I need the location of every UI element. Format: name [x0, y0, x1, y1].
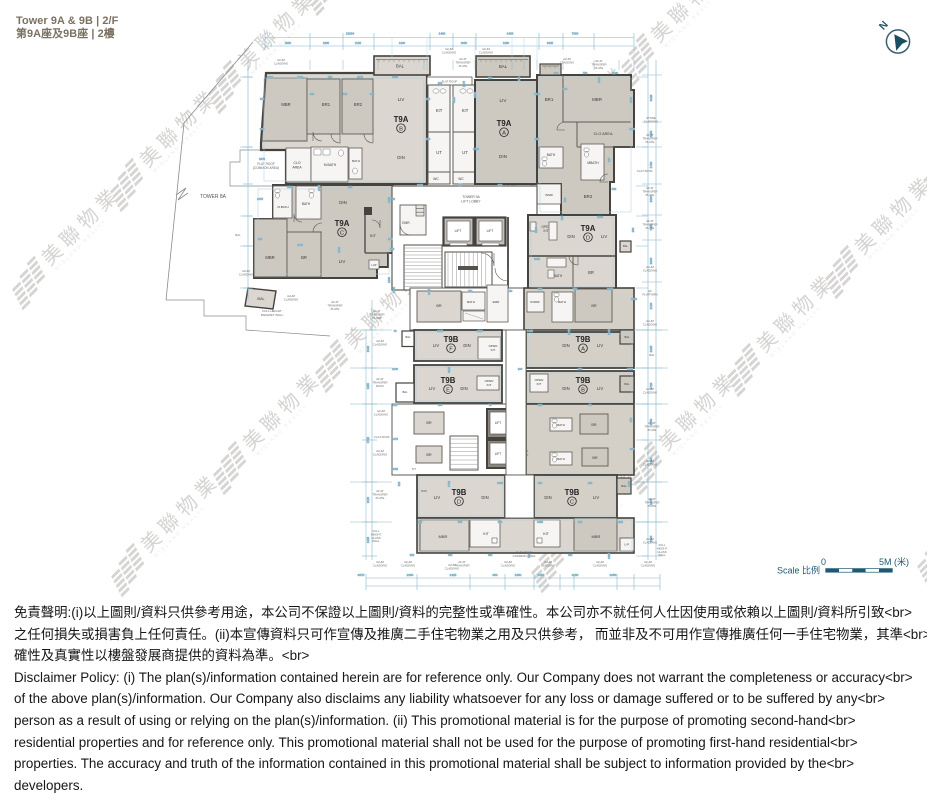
- svg-text:BR: BR: [426, 453, 432, 457]
- svg-text:KIT: KIT: [462, 108, 469, 113]
- svg-text:300: 300: [631, 227, 635, 232]
- svg-text:75: 75: [489, 403, 492, 407]
- svg-text:LUP: LUP: [371, 263, 376, 267]
- svg-text:PLATFORM: PLATFORM: [642, 292, 658, 296]
- svg-text:CLADDING: CLADDING: [643, 322, 657, 326]
- svg-text:2800: 2800: [649, 257, 653, 264]
- svg-text:BATH: BATH: [547, 153, 556, 157]
- svg-text:4150: 4150: [572, 573, 579, 577]
- svg-text:KIT: KIT: [487, 383, 492, 387]
- svg-text:100: 100: [438, 81, 443, 85]
- svg-text:525: 525: [418, 520, 423, 524]
- svg-text:UT: UT: [462, 150, 468, 155]
- svg-text:MBR: MBR: [421, 489, 427, 493]
- svg-text:7980: 7980: [572, 32, 579, 36]
- svg-text:150: 150: [578, 520, 583, 524]
- svg-text:PLATE: PLATE: [646, 226, 655, 230]
- svg-text:PLATE: PLATE: [331, 307, 340, 311]
- svg-text:3129: 3129: [366, 345, 370, 352]
- svg-text:2100: 2100: [649, 302, 653, 309]
- svg-text:750: 750: [260, 97, 265, 101]
- svg-text:300: 300: [538, 287, 543, 291]
- svg-text:150: 150: [388, 237, 393, 241]
- svg-text:T9A: T9A: [394, 115, 409, 124]
- svg-text:CLO: CLO: [294, 161, 301, 165]
- svg-text:1350: 1350: [503, 41, 510, 45]
- svg-text:CLADDING: CLADDING: [643, 390, 657, 394]
- svg-text:1050: 1050: [627, 481, 631, 487]
- svg-text:M.BATH: M.BATH: [277, 205, 288, 209]
- svg-text:CLADDING: CLADDING: [643, 268, 657, 272]
- svg-text:DIN: DIN: [460, 386, 467, 391]
- svg-text:A: A: [502, 131, 506, 137]
- svg-text:PLATE: PLATE: [646, 193, 655, 197]
- svg-text:C: C: [340, 231, 344, 237]
- svg-text:5/T: 5/T: [412, 467, 416, 471]
- svg-text:KIT: KIT: [544, 229, 549, 233]
- svg-text:CLO AREA: CLO AREA: [594, 132, 613, 136]
- svg-text:BR: BR: [436, 304, 442, 308]
- svg-text:100: 100: [554, 71, 559, 75]
- svg-text:1675: 1675: [427, 289, 431, 295]
- svg-text:3425: 3425: [607, 553, 611, 559]
- svg-text:TOWER 9A: TOWER 9A: [462, 195, 480, 199]
- svg-text:LIV: LIV: [339, 259, 346, 264]
- svg-text:BAL: BAL: [402, 390, 408, 394]
- svg-text:3025: 3025: [534, 257, 540, 261]
- svg-text:D: D: [586, 236, 590, 242]
- svg-text:PLATE: PLATE: [648, 504, 657, 508]
- svg-text:BR: BR: [588, 270, 594, 275]
- svg-text:LIFT: LIFT: [455, 229, 462, 233]
- svg-text:225: 225: [426, 97, 431, 101]
- svg-text:2100: 2100: [612, 71, 618, 75]
- svg-text:3025: 3025: [497, 481, 503, 485]
- svg-text:750: 750: [573, 287, 578, 291]
- svg-text:1050: 1050: [631, 297, 637, 301]
- svg-text:1050: 1050: [392, 287, 396, 293]
- svg-text:COMMON AREA: COMMON AREA: [513, 554, 536, 558]
- svg-text:BAL: BAL: [624, 382, 630, 386]
- svg-text:U.P.: U.P.: [624, 543, 630, 547]
- svg-text:T9B: T9B: [576, 376, 591, 385]
- svg-text:750: 750: [583, 71, 588, 75]
- svg-text:PLATE: PLATE: [648, 428, 657, 432]
- svg-text:2100: 2100: [607, 329, 611, 335]
- svg-text:150: 150: [488, 76, 493, 80]
- svg-text:T9B: T9B: [444, 335, 459, 344]
- svg-text:100: 100: [518, 367, 523, 371]
- svg-text:2475: 2475: [257, 197, 263, 201]
- svg-text:75: 75: [394, 329, 397, 333]
- svg-text:CLADDING: CLADDING: [373, 452, 387, 456]
- svg-text:BATH: BATH: [302, 202, 311, 206]
- svg-text:T9B: T9B: [441, 376, 456, 385]
- svg-text:WALL: WALL: [658, 553, 666, 557]
- svg-text:3025: 3025: [452, 97, 456, 103]
- svg-text:0: 0: [821, 557, 826, 567]
- svg-text:3050: 3050: [461, 41, 468, 45]
- svg-text:2100: 2100: [392, 367, 398, 371]
- svg-text:3025: 3025: [447, 367, 451, 373]
- svg-text:KIT: KIT: [537, 382, 542, 386]
- svg-text:RSMRR: RSMRR: [530, 301, 539, 304]
- svg-text:100: 100: [438, 403, 443, 407]
- svg-text:750: 750: [448, 553, 453, 557]
- svg-text:LIFT: LIFT: [495, 452, 502, 456]
- svg-text:MBR: MBR: [592, 97, 602, 102]
- svg-text:LIV: LIV: [597, 386, 603, 391]
- svg-text:BAL: BAL: [235, 233, 241, 237]
- svg-text:3025: 3025: [317, 185, 321, 191]
- svg-text:PLATE: PLATE: [646, 140, 655, 144]
- svg-text:3129: 3129: [649, 94, 653, 101]
- svg-text:3025: 3025: [607, 287, 613, 291]
- svg-text:CLADDING: CLADDING: [541, 563, 555, 567]
- svg-text:DIN: DIN: [562, 343, 569, 348]
- svg-text:1675: 1675: [392, 437, 398, 441]
- svg-text:675: 675: [458, 183, 463, 187]
- svg-text:300: 300: [498, 183, 503, 187]
- svg-text:T9B: T9B: [452, 488, 467, 497]
- svg-text:3425: 3425: [617, 520, 623, 524]
- svg-text:BR: BR: [301, 255, 307, 260]
- svg-text:EMR: EMR: [493, 300, 501, 304]
- svg-text:1486: 1486: [507, 32, 514, 36]
- svg-text:2100: 2100: [366, 496, 370, 503]
- svg-text:BR: BR: [591, 304, 597, 308]
- svg-text:2725: 2725: [567, 329, 571, 335]
- svg-text:1500: 1500: [267, 75, 273, 79]
- svg-text:1500: 1500: [629, 97, 633, 103]
- svg-text:5M (米): 5M (米): [879, 556, 909, 567]
- svg-text:MBATH: MBATH: [587, 161, 599, 165]
- svg-text:300: 300: [498, 520, 503, 524]
- svg-text:2725: 2725: [447, 481, 451, 487]
- svg-text:675: 675: [458, 520, 463, 524]
- svg-text:BATH: BATH: [557, 457, 565, 461]
- svg-text:150: 150: [538, 481, 543, 485]
- svg-text:T9A: T9A: [497, 119, 512, 128]
- svg-text:LIV: LIV: [601, 234, 607, 239]
- svg-text:PLATE: PLATE: [459, 64, 468, 68]
- svg-text:B: B: [581, 388, 585, 394]
- svg-text:1486: 1486: [439, 32, 446, 36]
- svg-text:1650: 1650: [515, 573, 522, 577]
- svg-text:CLADDING: CLADDING: [274, 61, 288, 65]
- svg-text:PARAPET WALL: PARAPET WALL: [261, 313, 284, 317]
- svg-text:DIN: DIN: [567, 234, 574, 239]
- svg-text:300: 300: [563, 197, 567, 202]
- svg-text:2475: 2475: [462, 81, 466, 87]
- svg-text:150: 150: [258, 237, 263, 241]
- svg-text:LIFT LOBBY: LIFT LOBBY: [461, 200, 481, 204]
- svg-text:BAL: BAL: [405, 335, 411, 339]
- svg-text:BATH: BATH: [558, 300, 566, 304]
- svg-text:525: 525: [410, 553, 415, 557]
- svg-text:DIN: DIN: [562, 386, 569, 391]
- svg-text:美聯物業: 美聯物業: [238, 367, 326, 455]
- svg-text:EMR: EMR: [402, 221, 410, 225]
- svg-text:150: 150: [348, 185, 353, 189]
- svg-text:CLADDING: CLADDING: [442, 50, 456, 54]
- svg-text:2350: 2350: [407, 573, 414, 577]
- svg-text:AREA: AREA: [292, 166, 302, 170]
- svg-text:CLADDING: CLADDING: [284, 297, 298, 301]
- svg-text:FLAT ROOF: FLAT ROOF: [374, 435, 390, 439]
- svg-text:N: N: [877, 19, 891, 33]
- svg-text:2725: 2725: [366, 436, 370, 443]
- svg-text:LIV: LIV: [429, 386, 435, 391]
- svg-text:300: 300: [260, 127, 265, 131]
- svg-text:KIT: KIT: [491, 348, 496, 352]
- svg-text:150: 150: [328, 75, 333, 79]
- svg-text:2125: 2125: [355, 41, 362, 45]
- svg-text:PLATE: PLATE: [373, 316, 382, 320]
- svg-text:C: C: [570, 500, 574, 506]
- svg-text:美聯物業: 美聯物業: [752, 269, 840, 357]
- svg-text:BR2: BR2: [354, 102, 363, 107]
- svg-text:12284: 12284: [346, 32, 355, 36]
- svg-text:525: 525: [535, 137, 540, 141]
- svg-text:100: 100: [426, 137, 431, 141]
- svg-text:1780: 1780: [649, 161, 653, 168]
- svg-text:BAL: BAL: [649, 353, 655, 357]
- svg-text:BAL: BAL: [396, 64, 405, 69]
- svg-text:DIN: DIN: [499, 154, 507, 159]
- svg-text:MBR: MBR: [265, 255, 274, 260]
- svg-text:BR: BR: [591, 423, 597, 427]
- svg-text:CLADDING: CLADDING: [643, 462, 657, 466]
- svg-text:BAL: BAL: [623, 244, 628, 248]
- svg-text:BAL: BAL: [624, 335, 630, 339]
- svg-text:LIV: LIV: [597, 343, 603, 348]
- svg-text:ROOF: ROOF: [376, 384, 384, 388]
- svg-text:LIV: LIV: [593, 495, 599, 500]
- svg-text:3425: 3425: [527, 329, 533, 333]
- svg-text:2100: 2100: [534, 227, 538, 233]
- svg-text:525: 525: [343, 92, 348, 96]
- svg-text:MBR: MBR: [281, 102, 290, 107]
- svg-text:KIT: KIT: [543, 532, 549, 536]
- svg-text:2725: 2725: [389, 197, 395, 201]
- svg-text:Scale 比例: Scale 比例: [777, 565, 820, 576]
- svg-text:KIT: KIT: [370, 233, 377, 238]
- svg-text:3025: 3025: [417, 183, 423, 187]
- svg-text:750: 750: [527, 553, 531, 558]
- svg-text:2725: 2725: [473, 147, 479, 151]
- svg-text:PLATE: PLATE: [376, 496, 385, 500]
- svg-text:BATH: BATH: [554, 274, 563, 278]
- svg-text:CLADDING: CLADDING: [643, 540, 657, 544]
- svg-text:WALL: WALL: [372, 539, 380, 543]
- svg-text:E: E: [446, 388, 450, 394]
- svg-text:1500: 1500: [477, 329, 483, 333]
- svg-text:675: 675: [370, 92, 375, 96]
- svg-text:DIN: DIN: [339, 200, 347, 205]
- svg-text:225: 225: [538, 403, 543, 407]
- svg-text:BR2: BR2: [584, 194, 593, 199]
- svg-text:TOWER 8A: TOWER 8A: [200, 194, 227, 200]
- svg-text:CLADDING: CLADDING: [560, 60, 574, 64]
- svg-text:BAL: BAL: [499, 64, 508, 69]
- svg-text:3425: 3425: [597, 77, 601, 83]
- svg-text:750: 750: [568, 553, 573, 557]
- svg-text:2725: 2725: [627, 367, 633, 371]
- svg-text:WC: WC: [458, 177, 464, 181]
- svg-text:225: 225: [397, 481, 401, 486]
- svg-text:3425: 3425: [547, 41, 554, 45]
- svg-text:LIV: LIV: [398, 97, 405, 102]
- svg-text:BAL: BAL: [257, 297, 264, 301]
- svg-text:2475: 2475: [259, 157, 265, 161]
- svg-text:CLADDING: CLADDING: [374, 412, 388, 416]
- svg-text:3425: 3425: [537, 520, 543, 524]
- svg-text:CLADDING: CLADDING: [373, 563, 387, 567]
- svg-text:BATH: BATH: [557, 423, 565, 427]
- svg-text:MBR: MBR: [592, 534, 601, 539]
- svg-text:BR1: BR1: [545, 97, 554, 102]
- svg-text:DIN: DIN: [481, 495, 488, 500]
- svg-text:DIN: DIN: [544, 495, 551, 500]
- svg-text:BR1: BR1: [322, 102, 331, 107]
- svg-text:美聯物業: 美聯物業: [136, 469, 224, 557]
- svg-text:2100: 2100: [297, 75, 303, 79]
- svg-text:150: 150: [508, 289, 513, 293]
- svg-text:2050: 2050: [610, 573, 617, 577]
- svg-text:2950: 2950: [285, 41, 292, 45]
- svg-text:1400: 1400: [399, 41, 406, 45]
- svg-text:MBR: MBR: [439, 534, 448, 539]
- svg-text:BATH: BATH: [352, 159, 360, 163]
- svg-text:750: 750: [488, 553, 493, 557]
- svg-text:1650: 1650: [323, 41, 330, 45]
- svg-text:LIV: LIV: [433, 343, 439, 348]
- svg-text:CLADDING: CLADDING: [373, 342, 387, 346]
- svg-text:M.BATH: M.BATH: [324, 163, 337, 167]
- svg-text:1925: 1925: [649, 345, 653, 352]
- svg-text:950: 950: [492, 573, 497, 577]
- svg-text:美聯物業: 美聯物業: [135, 84, 223, 172]
- svg-text:CLADDING: CLADDING: [644, 119, 658, 123]
- svg-text:2100: 2100: [597, 215, 603, 219]
- svg-text:150: 150: [517, 76, 521, 81]
- svg-text:BR: BR: [426, 421, 432, 425]
- svg-text:225: 225: [588, 481, 593, 485]
- svg-text:CLADDING: CLADDING: [593, 563, 607, 567]
- svg-text:A: A: [581, 347, 585, 353]
- svg-text:PLATE: PLATE: [595, 66, 604, 70]
- svg-text:300: 300: [630, 447, 635, 451]
- svg-text:美聯物業: 美聯物業: [37, 182, 125, 270]
- svg-text:1500: 1500: [287, 185, 293, 189]
- svg-text:DIN: DIN: [397, 155, 405, 160]
- svg-text:T9B: T9B: [565, 488, 580, 497]
- svg-text:750: 750: [468, 289, 473, 293]
- svg-text:1200: 1200: [387, 277, 391, 283]
- svg-text:(COMMON AREA): (COMMON AREA): [253, 166, 279, 170]
- svg-text:KIT: KIT: [483, 532, 489, 536]
- svg-text:F: F: [449, 347, 453, 353]
- svg-text:CLADDING: CLADDING: [239, 272, 253, 276]
- svg-text:525: 525: [560, 215, 564, 220]
- svg-text:美聯物業: 美聯物業: [654, 367, 742, 455]
- svg-text:LIV: LIV: [434, 495, 440, 500]
- svg-text:T9A: T9A: [581, 224, 596, 233]
- svg-text:225: 225: [310, 92, 315, 96]
- svg-text:B: B: [399, 127, 403, 133]
- svg-text:UT: UT: [436, 150, 442, 155]
- svg-text:6875: 6875: [358, 573, 365, 577]
- svg-text:BAL: BAL: [621, 484, 627, 488]
- svg-text:1675: 1675: [357, 75, 363, 79]
- svg-text:T9A: T9A: [335, 219, 350, 228]
- svg-text:150: 150: [578, 367, 583, 371]
- svg-text:LIFT: LIFT: [487, 229, 494, 233]
- svg-text:CLADDING: CLADDING: [641, 563, 655, 567]
- svg-text:KIT: KIT: [436, 108, 443, 113]
- svg-text:T9B: T9B: [576, 335, 591, 344]
- svg-text:WMR: WMR: [545, 193, 553, 197]
- svg-text:2450: 2450: [366, 382, 370, 389]
- svg-text:BR: BR: [592, 456, 598, 460]
- svg-text:CLADDING: CLADDING: [501, 563, 515, 567]
- svg-text:1200: 1200: [337, 247, 341, 253]
- svg-text:1500: 1500: [473, 92, 477, 98]
- svg-text:1200: 1200: [534, 92, 540, 96]
- svg-text:1200: 1200: [629, 127, 635, 131]
- svg-text:D: D: [457, 500, 461, 506]
- svg-text:2425: 2425: [450, 573, 457, 577]
- svg-text:BATH: BATH: [467, 300, 475, 304]
- svg-text:3025: 3025: [392, 467, 398, 471]
- svg-text:CLADDING: CLADDING: [479, 50, 493, 54]
- svg-text:1925: 1925: [366, 536, 370, 543]
- svg-text:LIFT: LIFT: [495, 421, 502, 425]
- svg-text:TRANSFER: TRANSFER: [454, 563, 469, 567]
- svg-text:3425: 3425: [392, 75, 398, 79]
- svg-text:DIN: DIN: [463, 343, 470, 348]
- svg-text:75: 75: [589, 403, 592, 407]
- svg-text:2475: 2475: [437, 329, 443, 333]
- svg-text:1675: 1675: [297, 243, 303, 247]
- svg-text:FLAT ROOF: FLAT ROOF: [442, 80, 458, 84]
- svg-text:525: 525: [612, 187, 617, 191]
- svg-text:FLAT ROOF: FLAT ROOF: [637, 169, 653, 173]
- svg-text:2350: 2350: [538, 573, 545, 577]
- svg-text:LIV: LIV: [500, 98, 508, 103]
- svg-text:CLADDING: CLADDING: [401, 563, 415, 567]
- svg-text:525: 525: [390, 247, 395, 251]
- svg-text:675: 675: [629, 417, 633, 422]
- svg-text:225: 225: [607, 157, 611, 162]
- svg-text:WC: WC: [433, 177, 439, 181]
- svg-text:150: 150: [563, 87, 568, 91]
- svg-text:225: 225: [393, 403, 398, 407]
